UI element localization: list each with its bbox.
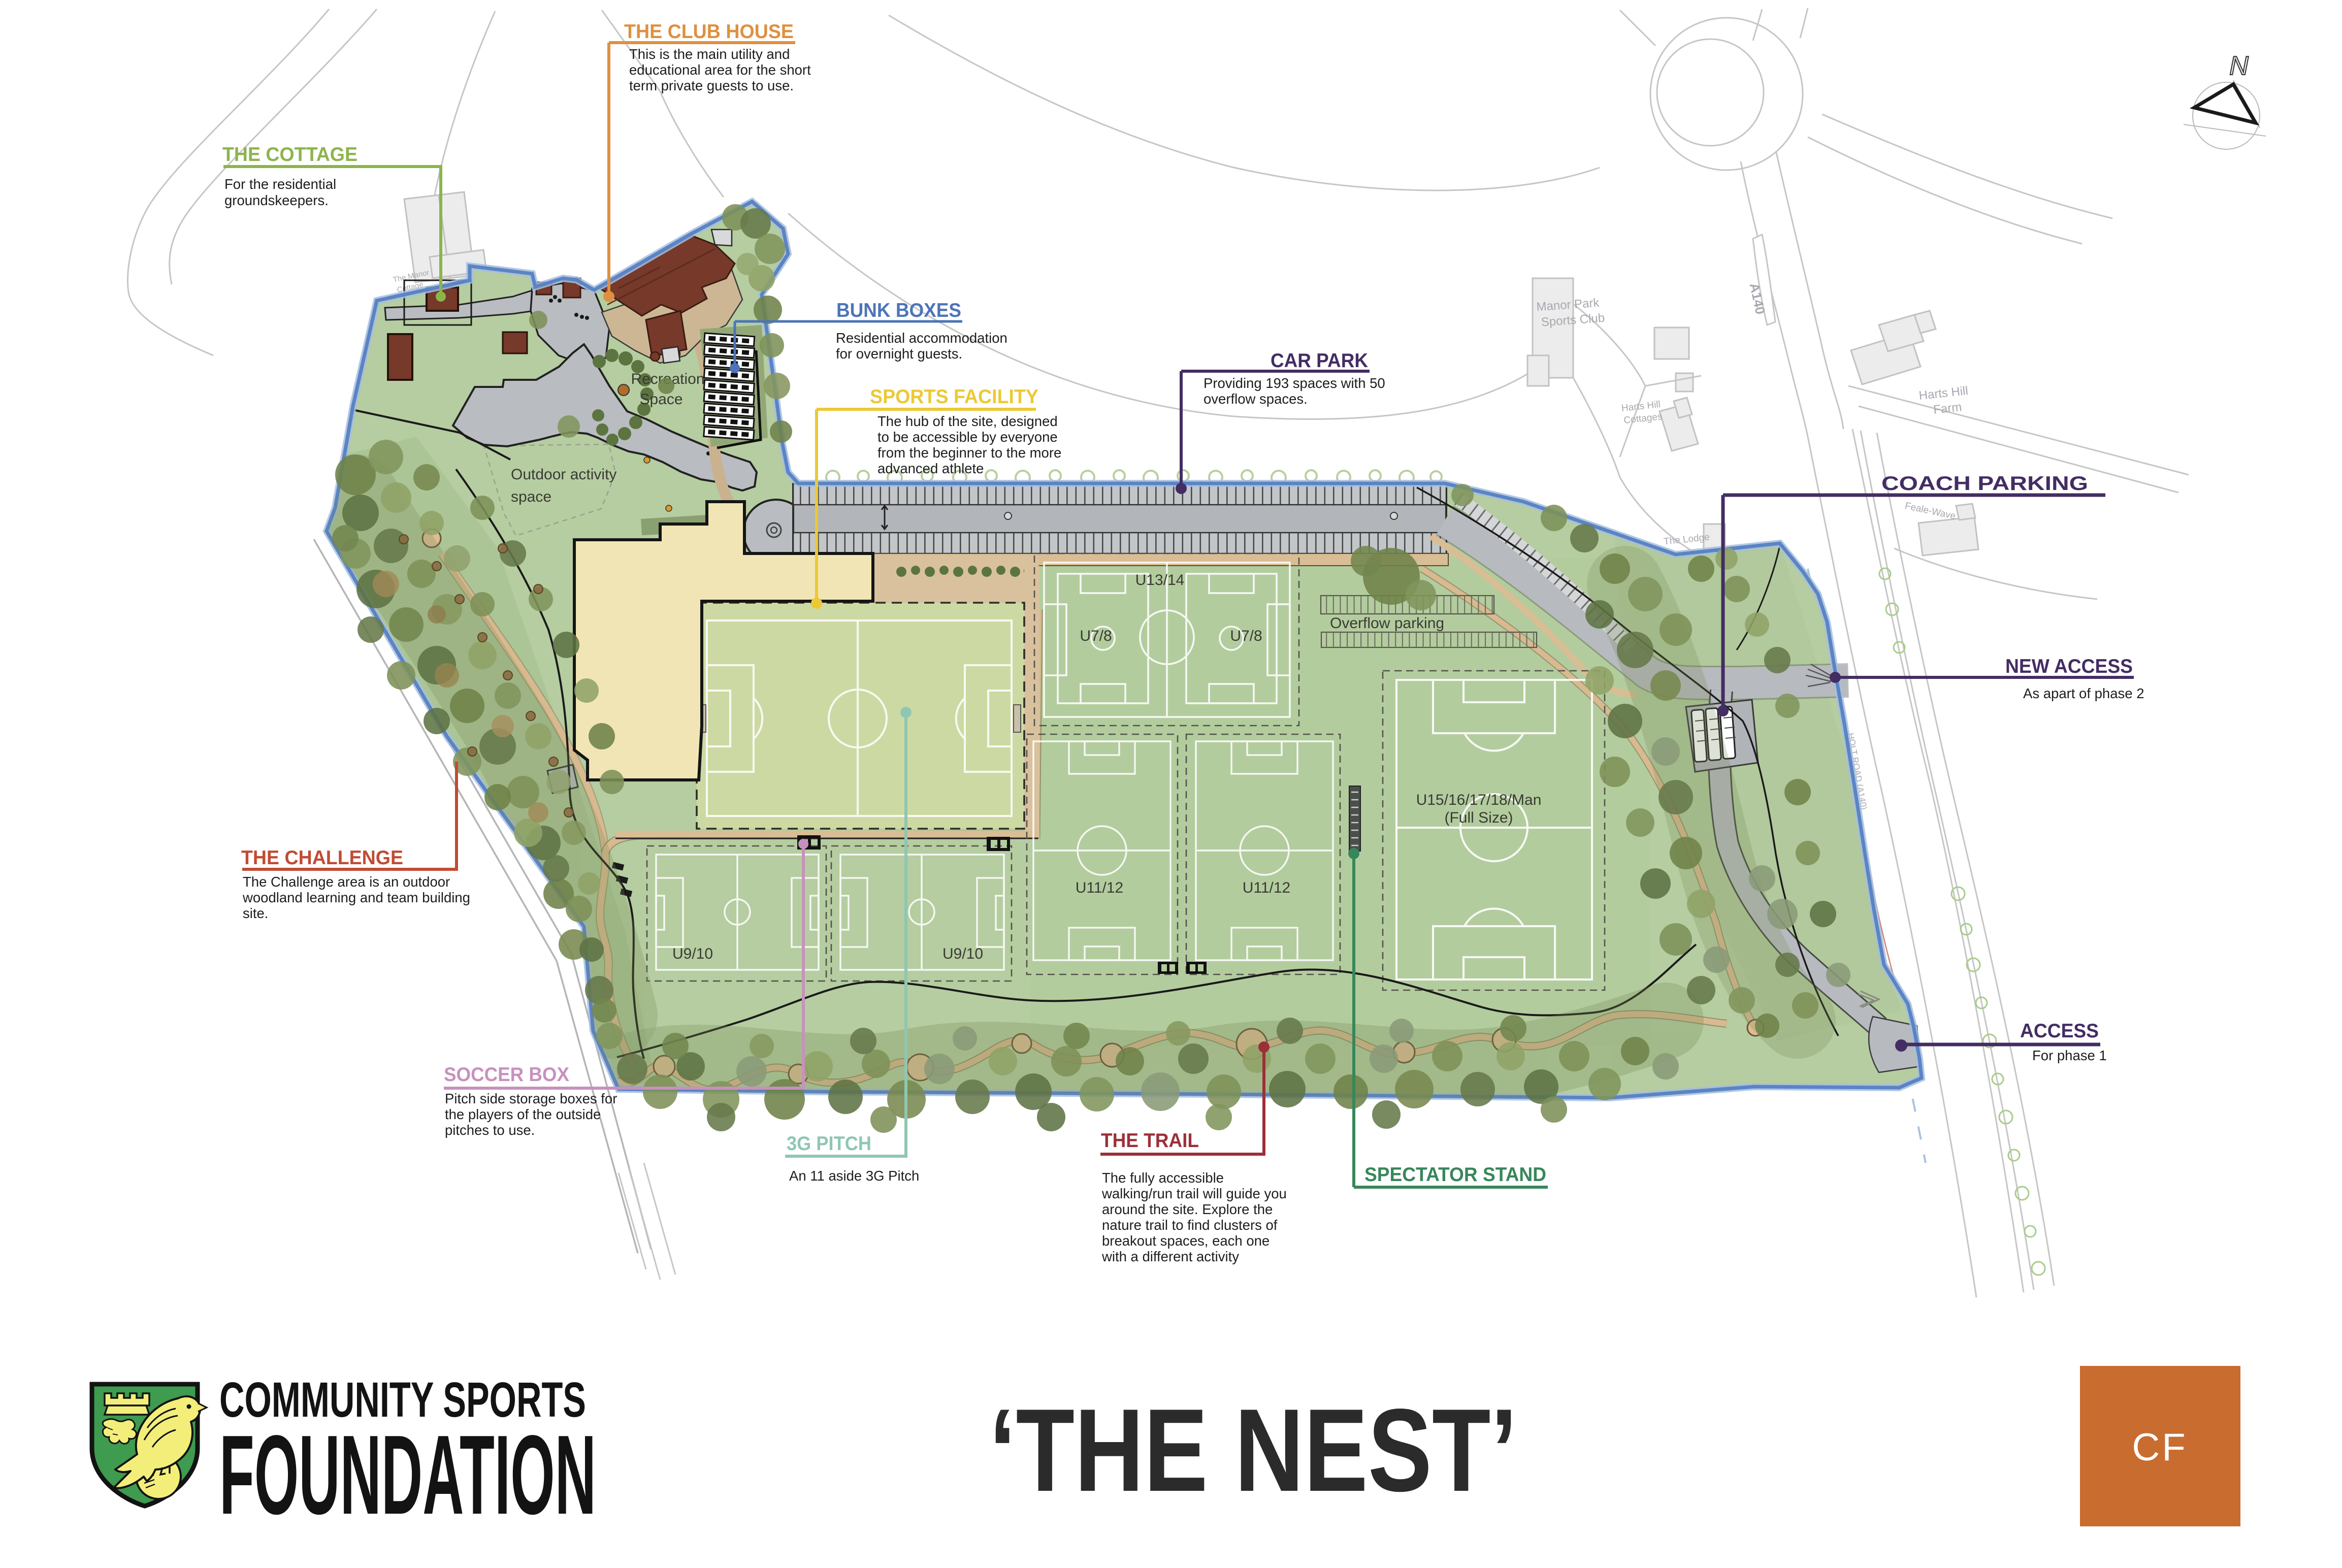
svg-text:ACCESS: ACCESS	[2020, 1020, 2099, 1042]
svg-text:The hub of the site, designed: The hub of the site, designed	[877, 413, 1058, 429]
svg-text:space: space	[511, 488, 551, 505]
svg-text:pitches to use.: pitches to use.	[445, 1122, 535, 1138]
svg-text:nature trail to find clusters: nature trail to find clusters of	[1102, 1217, 1278, 1233]
svg-text:U7/8: U7/8	[1230, 628, 1262, 644]
svg-text:Overflow parking: Overflow parking	[1330, 615, 1444, 632]
svg-text:around the site. Explore the: around the site. Explore the	[1102, 1201, 1273, 1217]
svg-text:FOUNDATION: FOUNDATION	[219, 1412, 596, 1538]
svg-text:SOCCER BOX: SOCCER BOX	[444, 1064, 569, 1086]
svg-text:COACH PARKING: COACH PARKING	[1881, 473, 2088, 495]
svg-text:Outdoor activity: Outdoor activity	[511, 466, 616, 483]
svg-text:term private guests to use.: term private guests to use.	[629, 78, 794, 93]
svg-text:CF: CF	[2132, 1426, 2187, 1469]
svg-text:breakout spaces, each one: breakout spaces, each one	[1102, 1233, 1270, 1249]
svg-text:CAR PARK: CAR PARK	[1271, 350, 1368, 372]
svg-text:For the residential: For the residential	[224, 176, 336, 192]
svg-text:advanced athlete: advanced athlete	[877, 461, 984, 476]
svg-text:from the beginner to the more: from the beginner to the more	[877, 445, 1061, 461]
svg-text:U11/12: U11/12	[1243, 879, 1291, 896]
svg-text:U13/14: U13/14	[1135, 572, 1185, 589]
svg-text:U7/8: U7/8	[1080, 628, 1112, 644]
svg-text:THE CLUB HOUSE: THE CLUB HOUSE	[624, 21, 794, 43]
svg-text:woodland learning and team bui: woodland learning and team building	[242, 890, 470, 905]
svg-text:‘THE NEST’: ‘THE NEST’	[989, 1385, 1517, 1516]
svg-text:This is the main utility and: This is the main utility and	[629, 46, 790, 62]
svg-text:U15/16/17/18/Man: U15/16/17/18/Man	[1416, 792, 1542, 808]
svg-text:educational area for the short: educational area for the short	[629, 62, 811, 78]
svg-text:BUNK BOXES: BUNK BOXES	[836, 300, 961, 321]
svg-text:with a different activity: with a different activity	[1101, 1249, 1239, 1264]
svg-text:The fully accessible: The fully accessible	[1102, 1170, 1224, 1186]
svg-text:to be accessible by everyone: to be accessible by everyone	[877, 429, 1058, 445]
svg-text:An 11 aside 3G Pitch: An 11 aside 3G Pitch	[789, 1168, 919, 1184]
svg-text:U9/10: U9/10	[672, 945, 713, 962]
svg-text:N: N	[2229, 51, 2249, 81]
svg-text:THE CHALLENGE: THE CHALLENGE	[241, 847, 403, 869]
svg-text:U11/12: U11/12	[1076, 879, 1124, 896]
svg-text:Space: Space	[639, 391, 682, 408]
svg-text:(Full Size): (Full Size)	[1444, 809, 1513, 826]
svg-text:overflow spaces.: overflow spaces.	[1203, 391, 1308, 407]
svg-text:THE COTTAGE: THE COTTAGE	[222, 144, 357, 166]
svg-text:For phase 1: For phase 1	[2032, 1048, 2107, 1063]
svg-text:Providing 193 spaces with 50: Providing 193 spaces with 50	[1203, 375, 1385, 391]
svg-text:the players of the outside: the players of the outside	[445, 1106, 601, 1122]
svg-text:Residential accommodation: Residential accommodation	[836, 330, 1007, 346]
svg-text:3G PITCH: 3G PITCH	[787, 1133, 871, 1155]
svg-text:Pitch side storage boxes for: Pitch side storage boxes for	[445, 1091, 617, 1106]
svg-text:The Challenge area is an outdo: The Challenge area is an outdoor	[243, 874, 450, 890]
svg-text:site.: site.	[243, 905, 268, 921]
svg-text:NEW ACCESS: NEW ACCESS	[2005, 656, 2133, 677]
svg-text:for overnight guests.: for overnight guests.	[836, 346, 962, 362]
svg-text:walking/run trail will guide y: walking/run trail will guide you	[1101, 1186, 1287, 1201]
svg-text:U9/10: U9/10	[942, 945, 983, 962]
svg-text:SPORTS FACILITY: SPORTS FACILITY	[870, 386, 1038, 408]
svg-text:THE TRAIL: THE TRAIL	[1101, 1130, 1199, 1152]
svg-text:SPECTATOR STAND: SPECTATOR STAND	[1364, 1164, 1546, 1186]
svg-text:groundskeepers.: groundskeepers.	[224, 192, 329, 208]
svg-text:As apart of phase 2: As apart of phase 2	[2023, 685, 2144, 701]
